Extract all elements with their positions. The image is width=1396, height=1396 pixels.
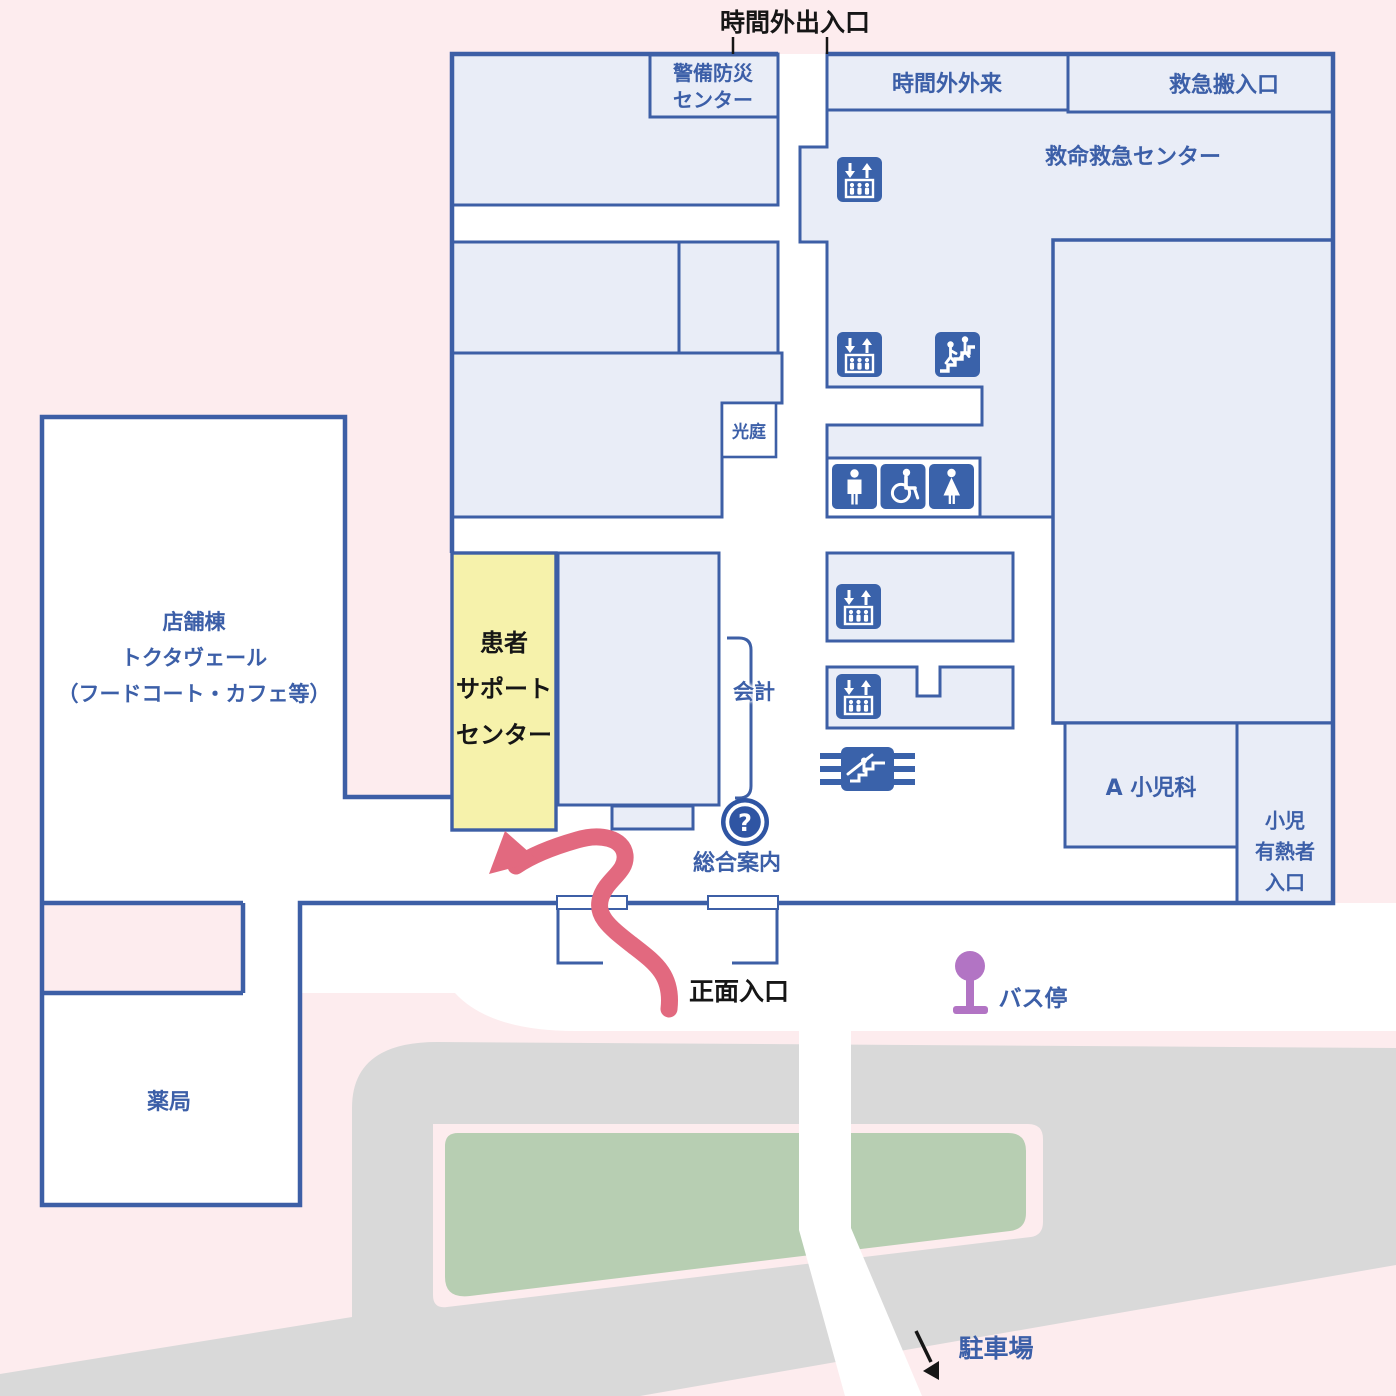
- label-light-court: 光庭: [732, 418, 766, 443]
- block-center-hall: [558, 553, 719, 805]
- label-main-entrance: 正面入口: [689, 972, 789, 1008]
- label-patient-support-center: 患者 サポート センター: [456, 620, 552, 758]
- label-parking: 駐車場: [958, 1329, 1033, 1365]
- label-line: （フードコート・カフェ等）: [58, 676, 331, 712]
- elevator-icon: [837, 332, 882, 377]
- elevator-icon: [837, 157, 882, 202]
- label-line: 小児: [1255, 806, 1315, 837]
- label-pediatric-fever-entrance: 小児 有熱者 入口: [1255, 806, 1315, 899]
- wheelchair-icon: [881, 464, 926, 509]
- label-ambulance-entrance: 救急搬入口: [1169, 67, 1279, 99]
- label-pediatrics: A 小児科: [1106, 770, 1197, 802]
- label-after-hours-entrance: 時間外出入口: [720, 3, 870, 39]
- label-line: センター: [456, 712, 552, 758]
- label-line: センター: [673, 87, 753, 114]
- hall-south-tab: [612, 806, 693, 829]
- question-mark-glyph: ?: [738, 809, 752, 837]
- label-cashier: 会計: [733, 676, 775, 706]
- elevator-icon: [836, 674, 881, 719]
- label-emergency-center: 救命救急センター: [1045, 139, 1221, 171]
- label-security-center: 警備防災 センター: [673, 60, 753, 114]
- label-line: 店舗棟: [58, 604, 331, 640]
- label-line: トクタヴェール: [58, 640, 331, 676]
- label-line: サポート: [456, 666, 552, 712]
- label-pharmacy: 薬局: [147, 1084, 191, 1116]
- entrance-door-right: [708, 896, 778, 909]
- label-line: 警備防災: [673, 60, 753, 87]
- label-after-hours-outpatient: 時間外外来: [892, 66, 1002, 98]
- label-line: 入口: [1255, 868, 1315, 899]
- label-line: 患者: [456, 620, 552, 666]
- womens-restroom-icon: [929, 464, 974, 509]
- label-bus-stop: バス停: [999, 979, 1068, 1013]
- hospital-floor-map: 時間外出入口 警備防災 センター 時間外外来 救急搬入口 救命救急センター 光庭…: [0, 0, 1396, 1396]
- escalator-icon: [820, 747, 915, 791]
- block-north-b: [452, 242, 778, 353]
- label-line: 有熱者: [1255, 837, 1315, 868]
- stairs-icon: [935, 332, 980, 377]
- label-shop-building: 店舗棟 トクタヴェール （フードコート・カフェ等）: [58, 604, 331, 712]
- mens-restroom-icon: [832, 464, 877, 509]
- label-info-desk: 総合案内: [693, 845, 781, 877]
- elevator-icon: [836, 584, 881, 629]
